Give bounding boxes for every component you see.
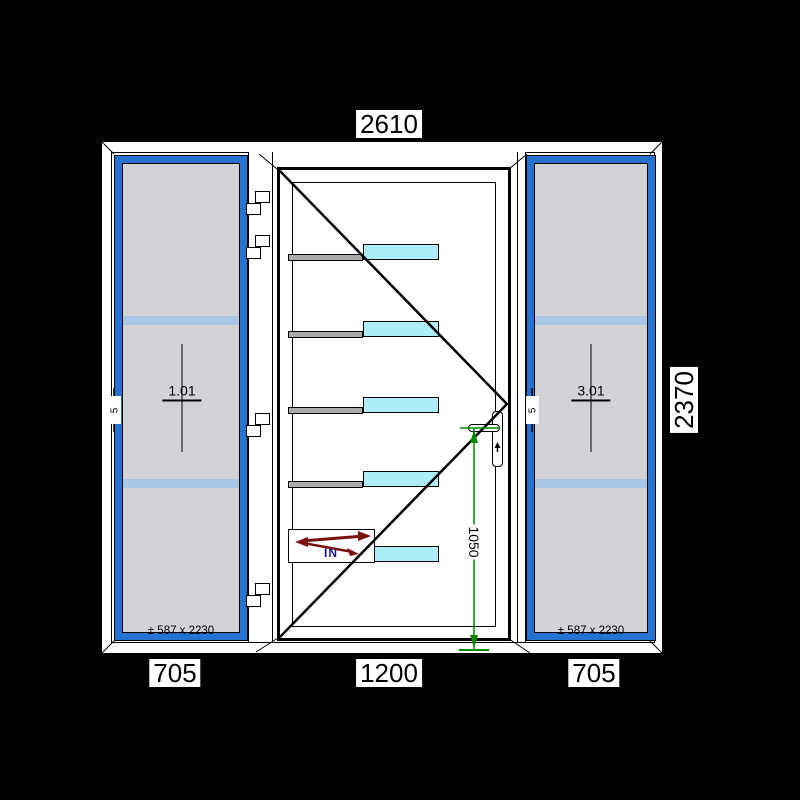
right-edge-marker: 5 (526, 396, 539, 424)
keyhole-icon (495, 442, 501, 452)
dim-overall-width: 2610 (356, 110, 422, 138)
dim-left-sidelight-width: 705 (149, 659, 200, 687)
in-label: IN (324, 546, 338, 560)
dim-right-sidelight-width: 705 (568, 659, 619, 687)
dim-door-width: 1200 (356, 659, 422, 687)
left-glass-size-label: ± 587 x 2230 (148, 625, 214, 637)
right-position-label: 3.01 (571, 383, 610, 402)
dim-overall-height: 2370 (670, 367, 698, 433)
dim-handle-height: 1050 (466, 524, 482, 559)
cad-canvas: 2610 705 1200 705 2370 1050 1.01 3.01 ± … (0, 0, 800, 800)
opening-direction-lines (279, 170, 507, 638)
left-position-label: 1.01 (162, 383, 201, 402)
right-glass-size-label: ± 587 x 2230 (558, 625, 624, 637)
left-edge-marker: 5 (108, 396, 121, 424)
